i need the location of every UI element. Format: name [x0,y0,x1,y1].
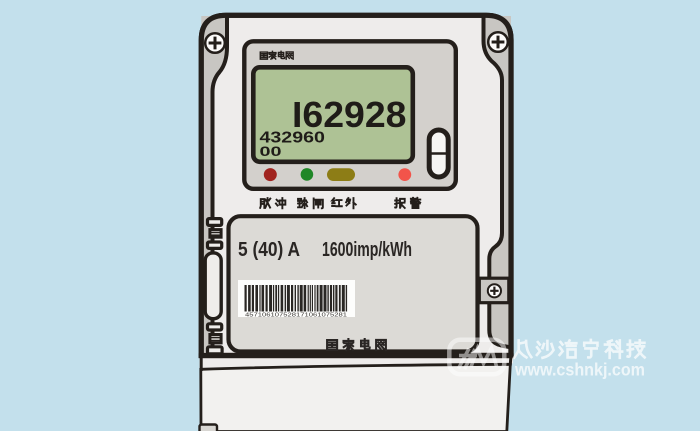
svg-text:457106107528171061075281: 457106107528171061075281 [245,312,347,318]
svg-text:www.cshnkj.com: www.cshnkj.com [514,360,645,380]
svg-text:00: 00 [260,143,282,160]
svg-text:1600imp/kWh: 1600imp/kWh [322,239,412,261]
svg-text:5 (40) A: 5 (40) A [238,239,300,261]
